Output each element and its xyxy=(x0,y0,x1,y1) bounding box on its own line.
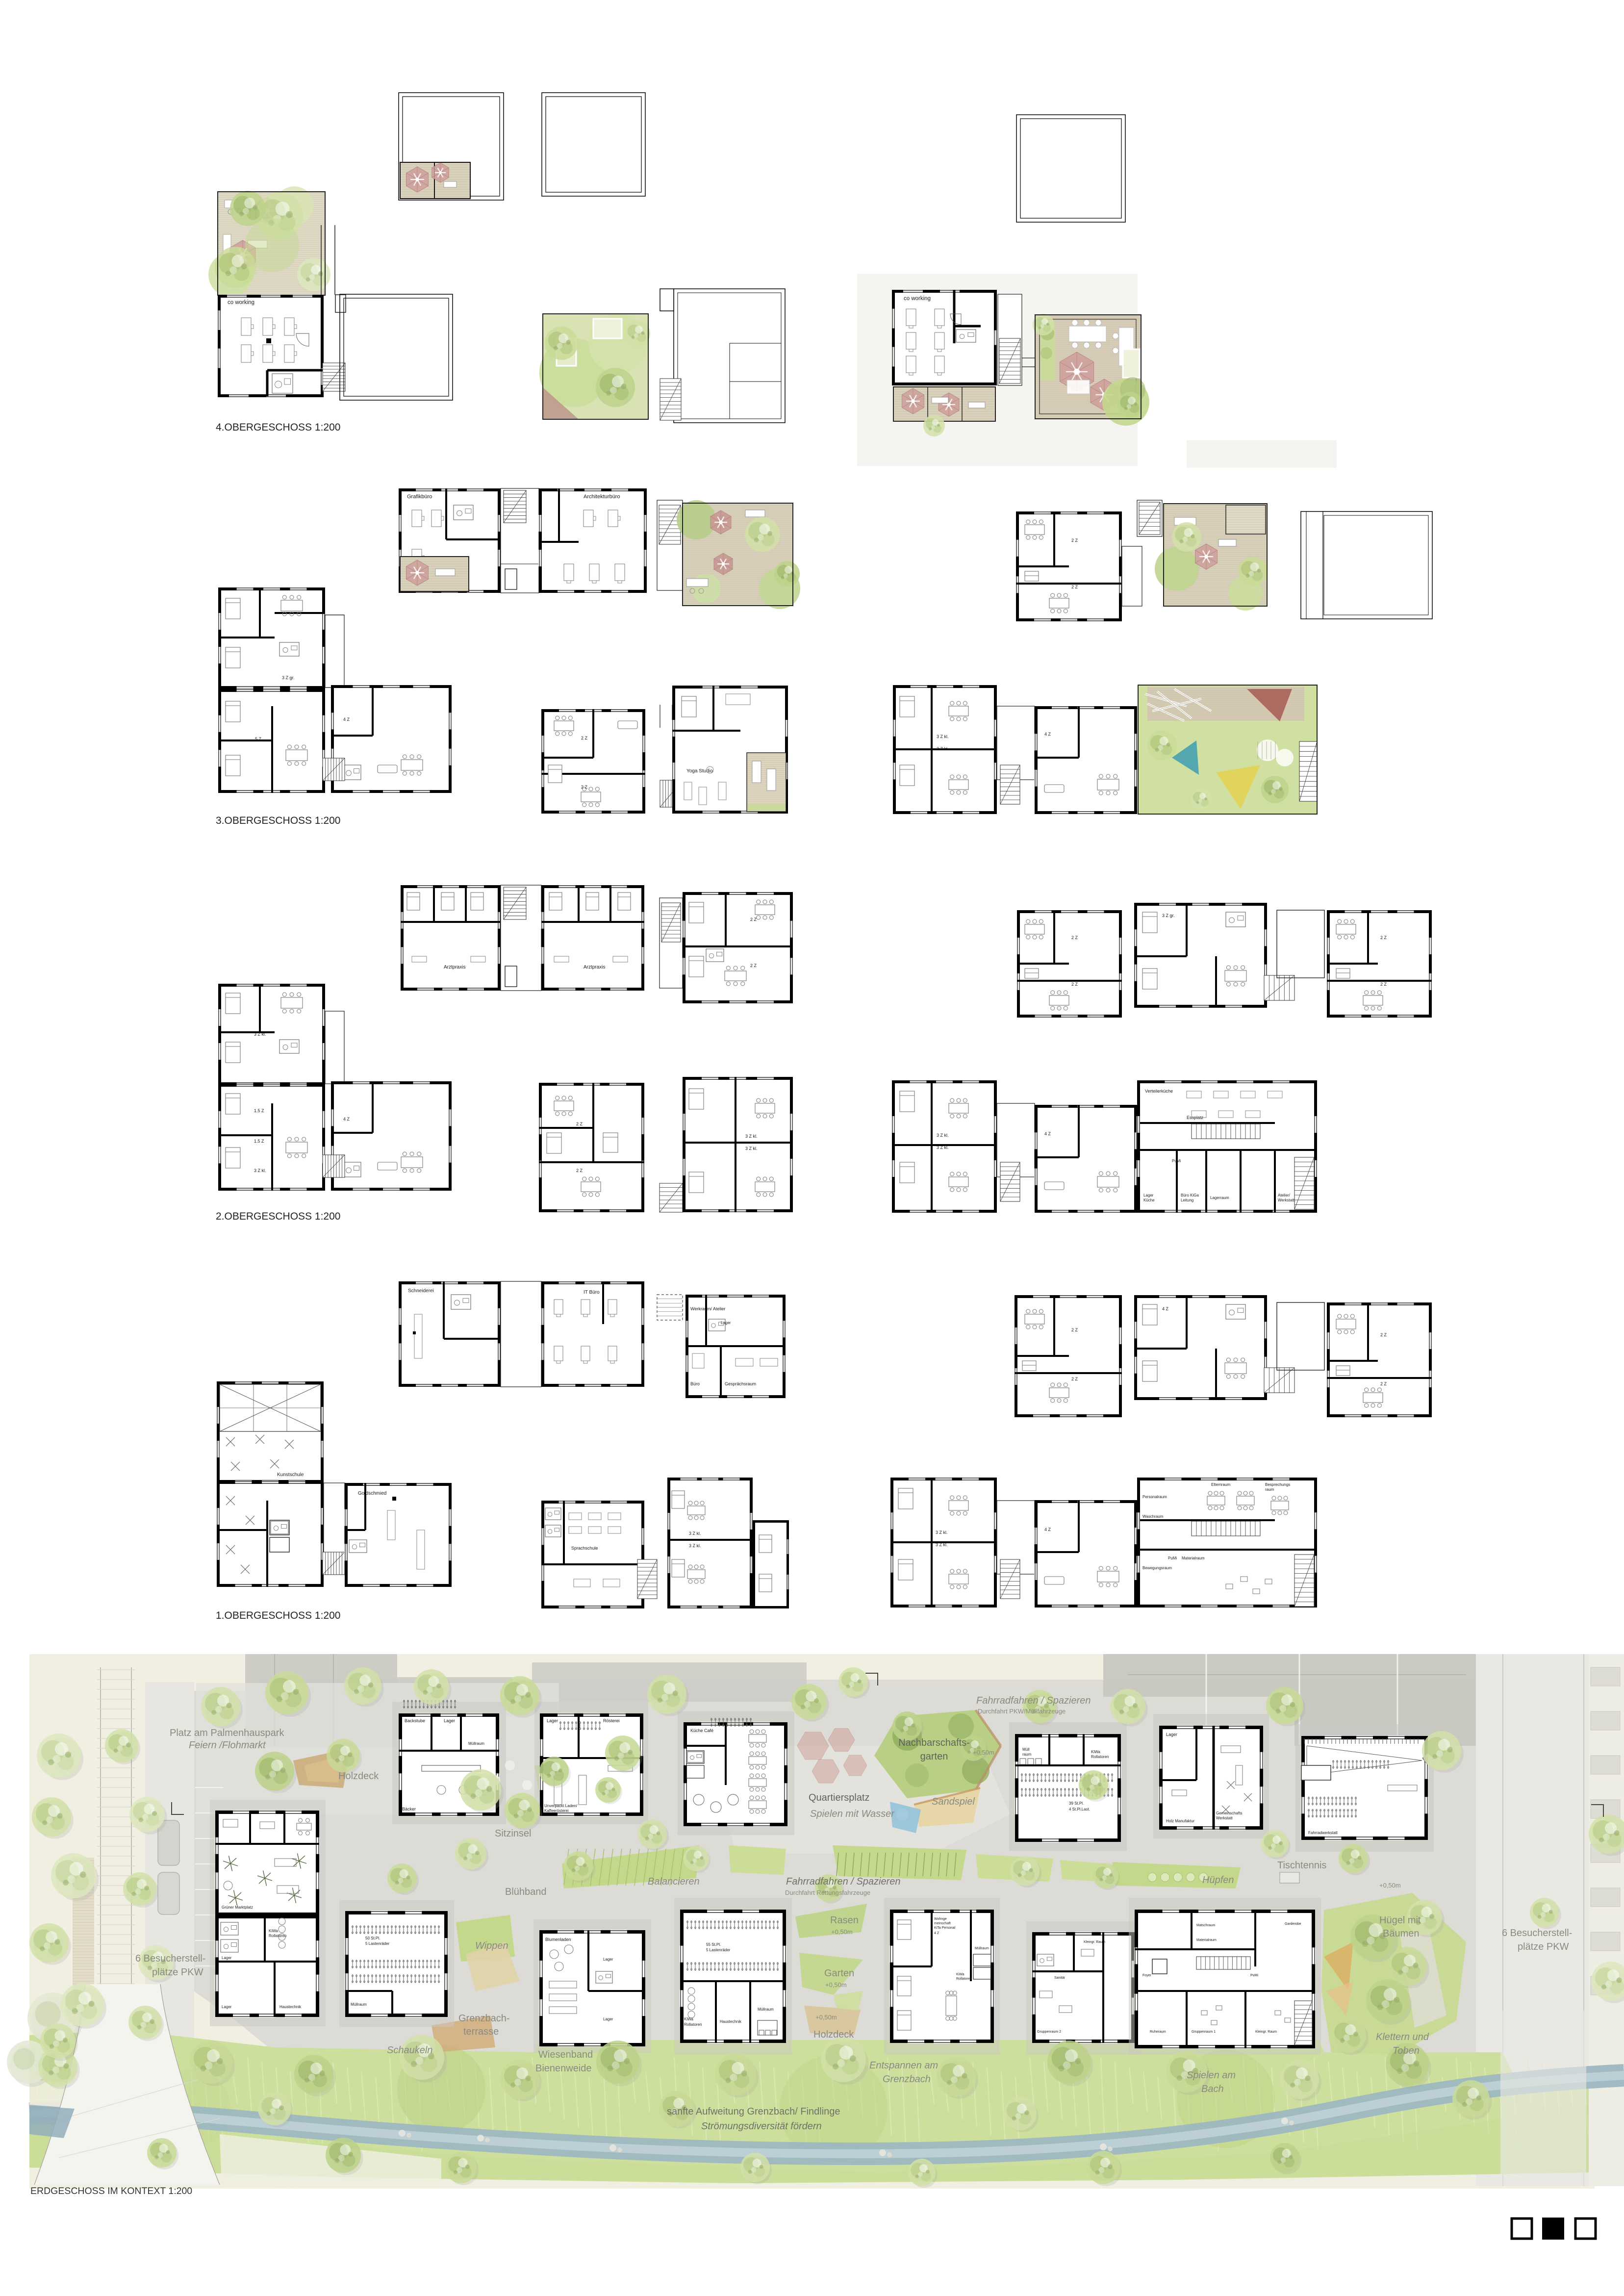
svg-text:Bäcker: Bäcker xyxy=(402,1807,416,1811)
svg-text:2.OBERGESCHOSS 1:200: 2.OBERGESCHOSS 1:200 xyxy=(216,1211,340,1222)
svg-text:Bewegungsraum: Bewegungsraum xyxy=(1142,1566,1172,1570)
svg-text:Gruppenraum 2: Gruppenraum 2 xyxy=(1037,2030,1061,2034)
svg-text:3 Z gr.: 3 Z gr. xyxy=(282,675,295,680)
svg-text:KiWa: KiWa xyxy=(956,1973,964,1976)
svg-text:Müllraum: Müllraum xyxy=(351,2002,367,2007)
svg-text:Blumenladen: Blumenladen xyxy=(545,1937,571,1942)
svg-text:1.5 Z: 1.5 Z xyxy=(254,1139,264,1144)
svg-text:Büro KiGa: Büro KiGa xyxy=(1181,1193,1199,1198)
svg-text:Goldschmied: Goldschmied xyxy=(358,1491,386,1496)
svg-text:Gemeinschafts: Gemeinschafts xyxy=(1216,1811,1242,1815)
svg-text:Matschraum: Matschraum xyxy=(1196,1924,1216,1927)
svg-text:Werkstatt: Werkstatt xyxy=(1216,1816,1233,1820)
svg-text:3 Z kl.: 3 Z kl. xyxy=(936,1530,948,1535)
svg-text:Lager: Lager xyxy=(444,1718,455,1723)
svg-text:KiTa Personal: KiTa Personal xyxy=(934,1926,956,1930)
svg-text:2 Z: 2 Z xyxy=(1380,935,1387,940)
svg-text:3 Z kl.: 3 Z kl. xyxy=(254,1032,266,1037)
svg-text:Lager: Lager xyxy=(721,1321,731,1325)
svg-text:Grafikbüro: Grafikbüro xyxy=(407,494,432,500)
svg-text:Leitung: Leitung xyxy=(1181,1198,1193,1202)
svg-text:4 Z: 4 Z xyxy=(343,1117,350,1122)
svg-text:2 Z: 2 Z xyxy=(581,736,588,740)
svg-text:Rollatoren: Rollatoren xyxy=(1091,1755,1109,1759)
svg-text:raum: raum xyxy=(1265,1487,1274,1492)
svg-text:4 Z: 4 Z xyxy=(934,1932,939,1935)
svg-text:2 Z: 2 Z xyxy=(576,1168,583,1173)
svg-text:Lager: Lager xyxy=(603,1957,613,1962)
svg-text:2 Z: 2 Z xyxy=(1071,585,1078,589)
svg-text:4 Z: 4 Z xyxy=(1044,732,1051,737)
svg-text:Wohnge: Wohnge xyxy=(934,1917,947,1921)
svg-text:Haustechnik: Haustechnik xyxy=(279,2005,302,2009)
svg-text:4 Z: 4 Z xyxy=(1044,1131,1051,1136)
svg-text:2 Z: 2 Z xyxy=(1380,1381,1387,1386)
svg-text:Elternraum: Elternraum xyxy=(1211,1482,1230,1487)
svg-text:Sanitär: Sanitär xyxy=(1054,1976,1066,1980)
svg-text:PuMi: PuMi xyxy=(1250,1974,1258,1977)
svg-text:2 Z: 2 Z xyxy=(1071,982,1078,987)
svg-text:2 Z: 2 Z xyxy=(1071,935,1078,940)
svg-text:Büro: Büro xyxy=(690,1381,700,1386)
svg-text:Gesprächsraum: Gesprächsraum xyxy=(725,1381,756,1386)
svg-text:50 St.Pl.: 50 St.Pl. xyxy=(365,1936,380,1940)
svg-text:Verteilerküche: Verteilerküche xyxy=(1145,1089,1173,1094)
svg-text:Ruheraum: Ruheraum xyxy=(1150,2030,1166,2034)
svg-text:Materialraum: Materialraum xyxy=(1196,1939,1217,1942)
svg-text:Grüner Marktplatz: Grüner Marktplatz xyxy=(222,1905,253,1910)
svg-text:Küche Café: Küche Café xyxy=(690,1728,713,1733)
svg-text:KiWa: KiWa xyxy=(269,1929,278,1933)
svg-text:4.OBERGESCHOSS 1:200: 4.OBERGESCHOSS 1:200 xyxy=(216,422,340,433)
svg-text:5 Z: 5 Z xyxy=(255,737,262,741)
svg-text:2 Z: 2 Z xyxy=(1071,1327,1078,1332)
svg-text:2 Z: 2 Z xyxy=(576,1122,583,1126)
svg-text:Rollatoren: Rollatoren xyxy=(684,2022,702,2027)
svg-text:3 Z kl.: 3 Z kl. xyxy=(689,1531,701,1536)
svg-text:Kleingr. Raum: Kleingr. Raum xyxy=(1255,2030,1277,2034)
svg-text:4 Z: 4 Z xyxy=(343,717,350,722)
svg-text:raum: raum xyxy=(1022,1752,1032,1757)
svg-text:KiWa: KiWa xyxy=(1091,1750,1100,1754)
svg-text:Müllraum: Müllraum xyxy=(975,1947,989,1950)
svg-text:5 Lastenräder: 5 Lastenräder xyxy=(365,1941,390,1946)
svg-text:Unverpackt Laden/: Unverpackt Laden/ xyxy=(544,1804,578,1808)
svg-text:Sprachschule: Sprachschule xyxy=(571,1546,598,1551)
svg-text:Kleingr. Raum: Kleingr. Raum xyxy=(1084,1940,1105,1944)
svg-text:2 Z: 2 Z xyxy=(750,917,757,922)
svg-text:Lager: Lager xyxy=(1166,1732,1177,1737)
svg-text:meinschaft: meinschaft xyxy=(934,1922,951,1925)
svg-text:Haustechnik: Haustechnik xyxy=(720,2019,742,2024)
svg-text:Foyer: Foyer xyxy=(1142,1974,1152,1977)
svg-text:Architekturbüro: Architekturbüro xyxy=(584,494,620,500)
svg-text:Gruppenraum 1: Gruppenraum 1 xyxy=(1192,2030,1216,2034)
svg-text:Besprechungs: Besprechungs xyxy=(1265,1482,1290,1487)
svg-text:3 Z kl.: 3 Z kl. xyxy=(937,734,949,739)
svg-text:Kaffeerösterei: Kaffeerösterei xyxy=(544,1809,569,1813)
svg-text:2 Z: 2 Z xyxy=(750,963,757,968)
svg-text:3 Z kl.: 3 Z kl. xyxy=(937,1133,949,1138)
svg-text:Atelier/: Atelier/ xyxy=(1278,1193,1291,1198)
svg-text:Schneiderei: Schneiderei xyxy=(408,1288,434,1294)
svg-text:4 St.Pl.Last.: 4 St.Pl.Last. xyxy=(1069,1807,1090,1811)
svg-text:Rösterei: Rösterei xyxy=(603,1718,620,1723)
svg-text:Personalraum: Personalraum xyxy=(1142,1495,1167,1499)
svg-text:co working: co working xyxy=(228,300,254,306)
svg-text:2 Z: 2 Z xyxy=(1380,1332,1387,1337)
svg-text:Garderobe: Garderobe xyxy=(1285,1922,1301,1926)
svg-text:co working: co working xyxy=(904,296,931,302)
svg-text:3 Z kl.: 3 Z kl. xyxy=(745,1146,758,1151)
svg-text:Arztpraxis: Arztpraxis xyxy=(584,965,605,970)
svg-text:Lager: Lager xyxy=(1143,1193,1154,1198)
svg-text:Lager: Lager xyxy=(222,2005,232,2009)
svg-text:Arztpraxis: Arztpraxis xyxy=(444,965,465,970)
svg-text:Müllraum: Müllraum xyxy=(758,2007,774,2012)
svg-text:1.5 Z: 1.5 Z xyxy=(254,1108,264,1113)
svg-text:PuMi: PuMi xyxy=(1168,1556,1177,1560)
svg-text:2 Z: 2 Z xyxy=(1071,538,1078,543)
svg-text:Fahrradwerkstatt: Fahrradwerkstatt xyxy=(1308,1831,1338,1835)
svg-text:55 St.Pl.: 55 St.Pl. xyxy=(706,1942,721,1947)
svg-text:Kunstschule: Kunstschule xyxy=(277,1472,304,1478)
svg-text:Lagerraum: Lagerraum xyxy=(1210,1196,1229,1200)
svg-text:2 Z: 2 Z xyxy=(1071,1377,1078,1381)
svg-text:3.OBERGESCHOSS 1:200: 3.OBERGESCHOSS 1:200 xyxy=(216,815,340,826)
svg-text:Rollatoren: Rollatoren xyxy=(956,1977,972,1981)
svg-text:IT Büro: IT Büro xyxy=(584,1290,600,1295)
svg-text:4 Z: 4 Z xyxy=(1162,1306,1169,1311)
svg-text:Waschraum: Waschraum xyxy=(1142,1514,1164,1519)
svg-text:3 Z kl.: 3 Z kl. xyxy=(745,1134,758,1139)
svg-text:Küche: Küche xyxy=(1143,1198,1155,1202)
svg-text:Holz Manufaktur: Holz Manufaktur xyxy=(1166,1819,1195,1823)
svg-text:1.OBERGESCHOSS 1:200: 1.OBERGESCHOSS 1:200 xyxy=(216,1610,340,1621)
svg-text:3 Z kl.: 3 Z kl. xyxy=(689,1543,701,1548)
svg-text:Werkraum/ Atelier: Werkraum/ Atelier xyxy=(690,1306,725,1311)
svg-text:Müllraum: Müllraum xyxy=(468,1741,484,1746)
svg-text:2 Z: 2 Z xyxy=(1380,982,1387,987)
svg-text:3 Z gr.: 3 Z gr. xyxy=(1162,913,1175,918)
svg-text:Materialraum: Materialraum xyxy=(1182,1556,1205,1560)
svg-text:Lager: Lager xyxy=(547,1718,558,1723)
svg-text:Lager: Lager xyxy=(222,1956,232,1960)
svg-text:PuMi: PuMi xyxy=(1172,1159,1181,1163)
svg-text:5 Lastenräder: 5 Lastenräder xyxy=(706,1948,731,1952)
svg-text:Müll: Müll xyxy=(1022,1747,1030,1752)
svg-text:Werkstatt: Werkstatt xyxy=(1278,1198,1294,1202)
svg-text:39 St.Pl.: 39 St.Pl. xyxy=(1069,1801,1084,1806)
svg-text:Backstube: Backstube xyxy=(405,1718,425,1723)
svg-text:Lager: Lager xyxy=(603,2017,613,2021)
svg-text:3 Z kl.: 3 Z kl. xyxy=(254,1168,266,1173)
svg-text:4 Z: 4 Z xyxy=(1044,1527,1051,1532)
